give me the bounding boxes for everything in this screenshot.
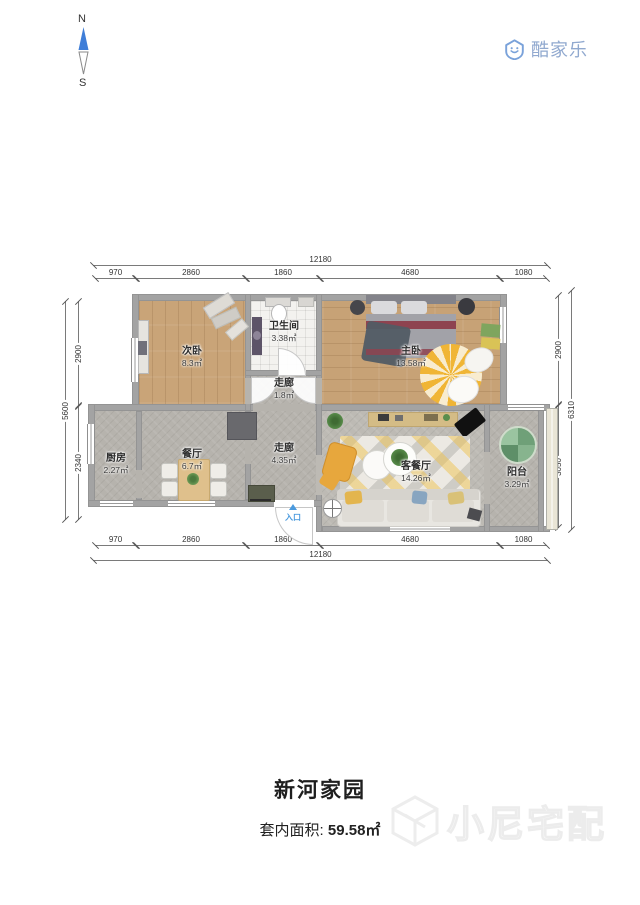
dining-chair	[161, 463, 178, 479]
floor-lamp	[323, 499, 342, 518]
entry-label: 入口	[285, 512, 301, 523]
dim-left-total: 5600	[65, 301, 66, 520]
room-label-balcony: 阳台 3.29㎡	[504, 466, 529, 490]
bed-pillow-left	[371, 301, 397, 314]
dim-bottom-seg: 970	[95, 545, 136, 546]
room-label-living: 客餐厅 14.26㎡	[401, 460, 431, 484]
room-label-secondary-bedroom: 次卧 8.3㎡	[182, 345, 202, 369]
dining-chair	[161, 481, 178, 497]
room-label-corridor-small: 走廊 1.8㎡	[274, 377, 294, 401]
dresser-tv	[138, 341, 147, 355]
opening-living	[316, 455, 322, 495]
room-label-dining: 餐厅 6.7㎡	[182, 448, 202, 472]
window-kitchen-left	[87, 424, 95, 464]
dim-top-seg: 970	[95, 278, 136, 279]
compass-needle-icon	[77, 27, 90, 75]
brand-logo: 酷家乐	[504, 36, 588, 62]
floor-plant	[327, 413, 343, 429]
room-label-master-bedroom: 主卧 13.58㎡	[396, 345, 426, 369]
window-kitchen-bottom	[100, 500, 133, 507]
dim-left-seg: 2340	[78, 406, 79, 520]
door-gap-master-bedroom	[316, 378, 322, 404]
bench-green	[480, 323, 500, 338]
entry-arrow-icon	[289, 504, 297, 510]
window-balcony-glass	[546, 408, 558, 530]
pillow-tan	[447, 491, 465, 505]
floorplan-page: N S 酷家乐	[0, 0, 640, 905]
dim-top-seg: 4680	[320, 278, 500, 279]
room-label-corridor-main: 走廊 4.35㎡	[271, 442, 296, 466]
doormat-edge	[250, 499, 271, 501]
console-item	[424, 414, 438, 421]
area-label: 套内面积:	[260, 822, 324, 839]
area-value: 59.58㎡	[328, 822, 381, 839]
dim-bottom-seg: 1080	[500, 545, 547, 546]
dim-bottom-seg: 2860	[136, 545, 246, 546]
console-item	[395, 415, 403, 421]
bed-pillow-right	[401, 301, 427, 314]
dining-chair	[210, 481, 227, 497]
dim-right-seg: 3050	[558, 405, 559, 528]
dim-right-seg: 2900	[558, 295, 559, 405]
dim-bottom-seg: 4680	[320, 545, 500, 546]
wall-central-vertical	[316, 294, 322, 532]
window-balcony-top	[508, 404, 544, 411]
door-gap-kitchen	[136, 470, 142, 498]
dim-bottom-total: 12180	[93, 560, 548, 561]
dim-top-total: 12180	[93, 265, 548, 266]
pillow-blue	[411, 490, 427, 504]
dim-left-seg: 2900	[78, 301, 79, 406]
table-plant	[187, 473, 199, 485]
bathroom-shelf	[298, 297, 314, 307]
room-label-bathroom: 卫生间 3.38㎡	[269, 320, 299, 344]
nightstand-right	[458, 298, 475, 315]
compass-north-label: N	[78, 13, 86, 25]
plan-title: 新河家园	[0, 774, 640, 804]
room-label-kitchen: 厨房 2.27㎡	[103, 452, 128, 476]
nightstand-left	[350, 300, 365, 315]
opening-corridor	[253, 404, 315, 411]
opening-balcony	[484, 452, 490, 504]
dim-top-seg: 2860	[136, 278, 246, 279]
plan-area-text: 套内面积: 59.58㎡	[0, 819, 640, 840]
compass-south-label: S	[79, 77, 86, 89]
bathroom-sink	[253, 331, 261, 340]
dim-bottom-seg: 1860	[246, 545, 320, 546]
kujiale-smiley-shield-icon	[504, 39, 525, 60]
rattan-chair	[499, 426, 537, 464]
dining-chair	[210, 463, 227, 479]
cabinet	[227, 412, 257, 440]
pillow-yellow	[344, 490, 362, 505]
window-dining-bottom	[168, 500, 215, 507]
dim-top-seg: 1860	[246, 278, 320, 279]
console-item	[378, 414, 389, 421]
console-plant	[443, 414, 450, 421]
dim-top-seg: 1080	[500, 278, 547, 279]
wall-balcony-right	[538, 404, 544, 532]
dim-right-total: 6310	[571, 290, 572, 530]
brand-name: 酷家乐	[531, 36, 588, 62]
